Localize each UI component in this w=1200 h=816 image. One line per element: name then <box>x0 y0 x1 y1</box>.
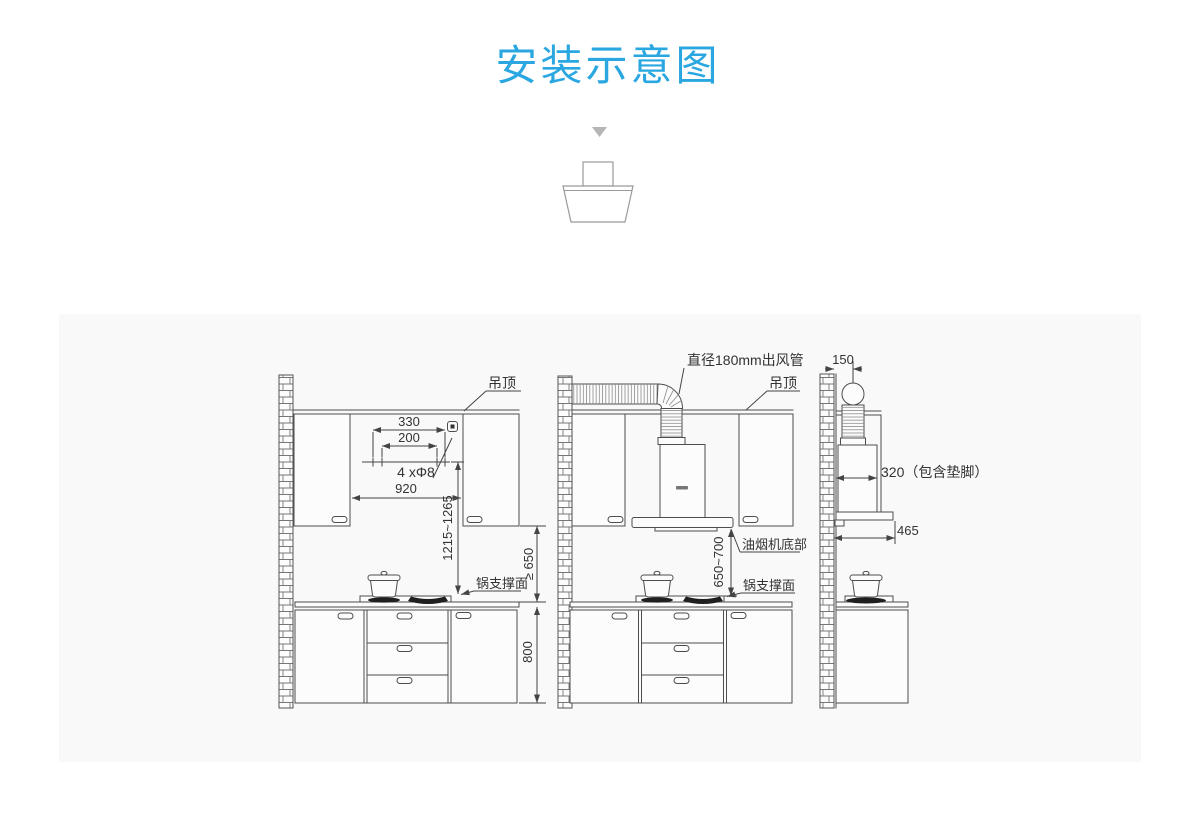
hood-bottom-label: 油烟机底部 <box>742 537 807 552</box>
dim-counter-height-label: 800 <box>520 641 535 663</box>
base-cabinets <box>295 610 517 703</box>
pot <box>850 571 882 597</box>
pot <box>368 571 400 597</box>
wall-cabinet-right <box>739 414 793 526</box>
dim-200-label: 200 <box>398 430 420 445</box>
countertop <box>570 602 792 607</box>
ceiling-label: 吊顶 <box>488 375 516 391</box>
dim-height-range-label: 650~700 <box>711 537 726 588</box>
hood-bottom-plate <box>836 512 893 520</box>
ceiling-label: 吊顶 <box>769 375 797 391</box>
chevron-down-icon <box>592 127 607 137</box>
wall-cabinet-left <box>572 414 625 526</box>
dim-920-label: 920 <box>395 481 417 496</box>
pot <box>641 571 673 597</box>
holes-label: 4 xΦ8 <box>397 464 435 480</box>
dim-height-range-label: 1215~1265 <box>440 495 455 560</box>
brick-wall <box>820 374 834 708</box>
base-cabinets <box>570 610 792 703</box>
dim-150-label: 150 <box>832 352 854 367</box>
dim-min-height-label: ≥ 650 <box>521 548 536 580</box>
hood-chimney <box>660 445 705 518</box>
installation-diagram: 安装示意图 330 200 <box>0 0 1200 816</box>
wall-cabinet-right <box>463 414 519 526</box>
depth-label: 320（包含垫脚） <box>881 464 988 480</box>
range-hood-icon <box>563 162 633 222</box>
countertop <box>295 602 519 607</box>
foot-pad <box>835 520 844 526</box>
burner <box>641 597 673 602</box>
duct-elbow <box>842 383 864 405</box>
burner <box>846 598 886 604</box>
duct-collar <box>658 438 685 445</box>
duct-collar <box>841 438 866 445</box>
hood-body <box>632 518 733 528</box>
page-title: 安装示意图 <box>495 42 720 89</box>
exhaust-duct <box>841 383 866 445</box>
duct-label: 直径180mm出风管 <box>687 352 804 368</box>
burner <box>368 597 400 602</box>
base-cabinet <box>836 610 908 703</box>
dim-330-label: 330 <box>398 414 420 429</box>
wall-cabinet-left <box>294 414 350 526</box>
dim-465-label: 465 <box>897 523 919 538</box>
pot-surface-label: 锅支撑面 <box>743 578 795 593</box>
brand-logo <box>676 486 688 490</box>
brick-wall <box>279 375 293 708</box>
